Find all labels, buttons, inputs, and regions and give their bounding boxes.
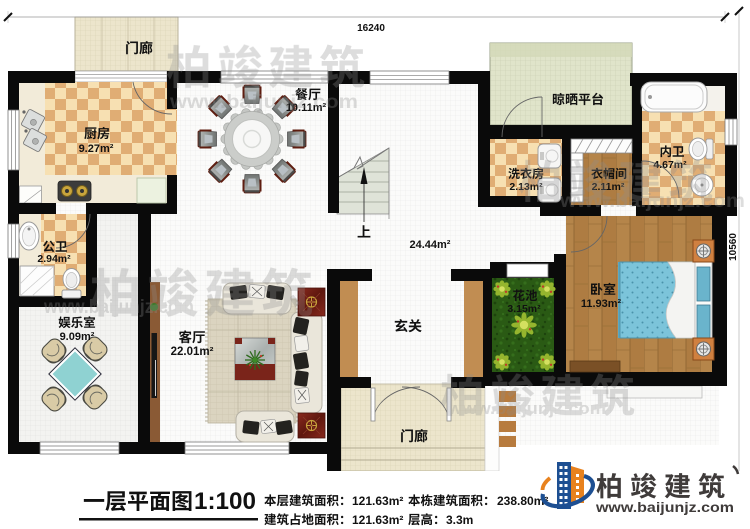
svg-text:www.baijunjz.com: www.baijunjz.com [169,92,358,113]
svg-text:24.44m²: 24.44m² [410,239,451,251]
svg-text:www.baijunjz.com: www.baijunjz.com [447,399,606,418]
svg-text:9.27m²: 9.27m² [79,143,114,155]
svg-text:3.3m: 3.3m [446,513,473,527]
svg-text:www.baijunjz.com: www.baijunjz.com [595,500,734,515]
svg-text:www.baijunjz.com: www.baijunjz.com [559,191,745,212]
svg-text:121.63m²: 121.63m² [352,494,403,508]
svg-text:10560: 10560 [728,233,739,261]
svg-text:2.94m²: 2.94m² [37,253,71,265]
svg-text:3.15m²: 3.15m² [507,303,541,315]
svg-text:1:100: 1:100 [194,488,256,515]
svg-text:9.09m²: 9.09m² [60,331,95,343]
svg-text:11.93m²: 11.93m² [581,298,622,310]
svg-text:www.baijunjz.com: www.baijunjz.com [43,297,194,318]
svg-text:22.01m²: 22.01m² [171,346,214,358]
svg-text:121.63m²: 121.63m² [352,513,403,527]
svg-text:16240: 16240 [357,23,385,34]
